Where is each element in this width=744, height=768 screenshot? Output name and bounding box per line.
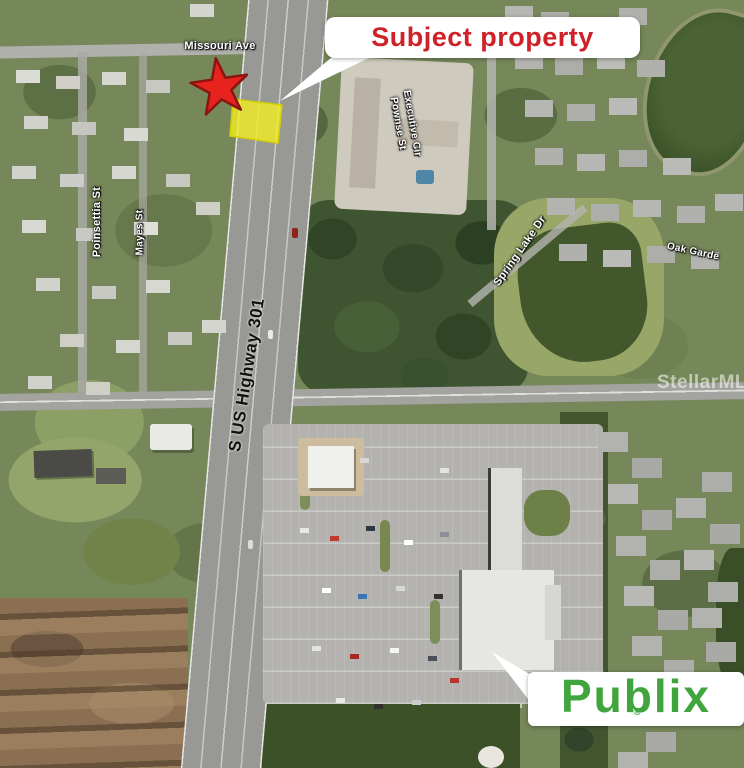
vehicle	[268, 330, 273, 339]
left-neighborhood-houses	[16, 70, 40, 83]
pond-bottom-right	[716, 548, 744, 688]
outparcel-building	[308, 446, 354, 488]
parked-cars	[300, 528, 309, 533]
subject-property-label: Subject property	[371, 22, 594, 53]
parking-island	[430, 600, 440, 644]
vehicle	[292, 228, 298, 238]
office-pool	[416, 170, 434, 184]
poinsettia-st-road	[78, 52, 87, 397]
publix-store-wing	[545, 585, 561, 640]
street-label-mayes-st: Mayes St	[135, 203, 146, 263]
subject-property-callout: Subject property	[325, 17, 640, 58]
commercial-building	[96, 468, 126, 484]
townhome-roofs	[598, 432, 628, 452]
parking-island	[380, 520, 390, 572]
street-label-missouri-ave: Missouri Ave	[158, 40, 282, 52]
retail-strip-building	[488, 468, 522, 572]
street-label-poinsettia-st: Poinsettia St	[91, 177, 103, 267]
neighborhood-street	[487, 55, 496, 230]
stellar-mls-watermark: StellarMLS	[657, 372, 744, 394]
landscape-lawn	[524, 490, 570, 536]
round-pool	[478, 746, 504, 768]
commercial-building	[34, 449, 93, 478]
vehicle	[248, 540, 253, 549]
gas-station-canopy	[150, 424, 192, 450]
registered-trademark-icon: ®	[633, 707, 640, 718]
aerial-map: Missouri Ave Poinsettia St Mayes St Pown…	[0, 0, 744, 768]
publix-store-building	[462, 570, 554, 670]
cleared-dirt-land	[0, 598, 188, 768]
publix-logo-callout: Publix ®	[528, 672, 744, 726]
